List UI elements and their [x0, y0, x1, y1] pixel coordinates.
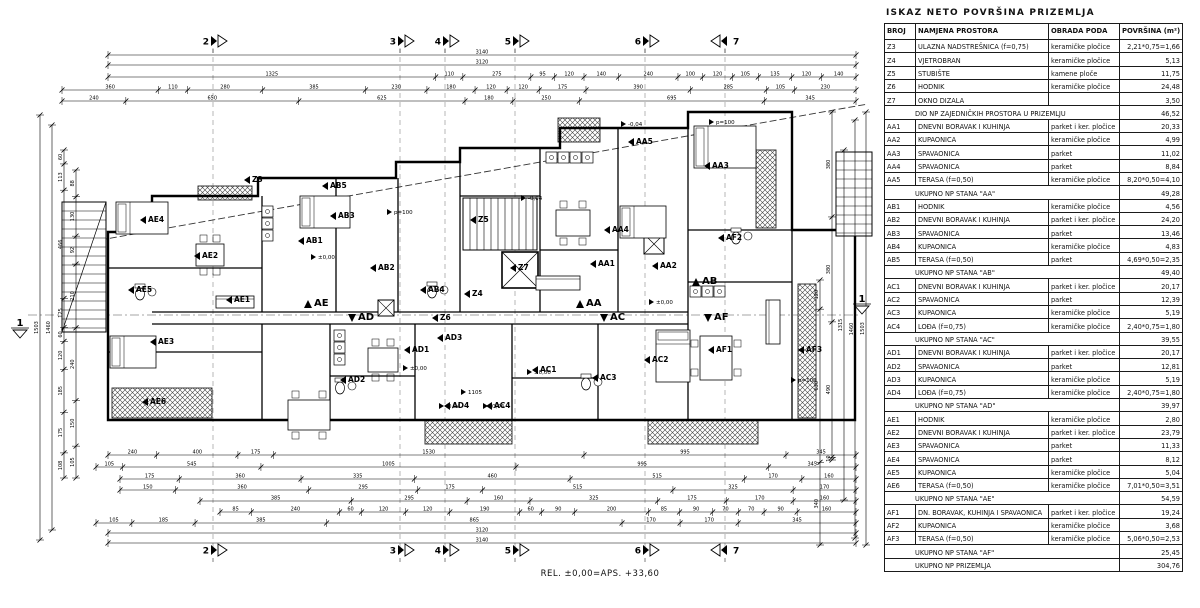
- row-label: UKUPNO NP STANA "AE": [885, 492, 1120, 505]
- svg-text:AB1: AB1: [306, 236, 323, 245]
- svg-text:AA4: AA4: [612, 225, 629, 234]
- svg-text:60: 60: [58, 154, 64, 160]
- table-row: AD4LOĐA (f=0,75)keramičke pločice2,40*0,…: [885, 385, 1183, 398]
- svg-text:360: 360: [237, 485, 247, 491]
- cell-broj: AA5: [885, 172, 916, 185]
- svg-text:AB3: AB3: [338, 211, 355, 220]
- table-row: Z7OKNO DIZALA3,50: [885, 93, 1183, 106]
- cell-obrada: keramičke pločice: [1049, 412, 1120, 425]
- cell-povrsina: 4,56: [1120, 199, 1183, 212]
- table-row: AE5KUPAONICAkeramičke pločice5,04: [885, 465, 1183, 478]
- cell-povrsina: 12,81: [1120, 359, 1183, 372]
- svg-text:2: 2: [203, 547, 209, 557]
- cell-namjena: TERASA (f=0,50): [916, 252, 1049, 265]
- table-row: AA3SPAVAONICAparket11,02: [885, 146, 1183, 159]
- cell-povrsina: 8,12: [1120, 452, 1183, 465]
- row-area-value: 39,55: [1120, 332, 1183, 345]
- cell-obrada: keramičke pločice: [1049, 372, 1120, 385]
- cell-broj: Z3: [885, 40, 916, 53]
- svg-text:185: 185: [58, 386, 64, 396]
- svg-text:1503: 1503: [860, 322, 866, 335]
- cell-obrada: keramičke pločice: [1049, 305, 1120, 318]
- svg-text:460: 460: [487, 474, 497, 480]
- cell-obrada: keramičke pločice: [1049, 518, 1120, 531]
- svg-text:88: 88: [70, 180, 76, 186]
- svg-text:135: 135: [770, 72, 780, 78]
- svg-text:AD1: AD1: [412, 345, 429, 354]
- svg-text:1325: 1325: [265, 72, 278, 78]
- svg-text:385: 385: [271, 496, 281, 502]
- cell-namjena: TERASA (f=0,50): [916, 478, 1049, 491]
- svg-text:85: 85: [232, 507, 238, 513]
- svg-text:190: 190: [480, 507, 490, 513]
- svg-text:AE6: AE6: [150, 397, 166, 406]
- cell-broj: Z7: [885, 93, 916, 106]
- svg-text:1503: 1503: [34, 321, 40, 334]
- svg-text:995: 995: [637, 462, 647, 468]
- cell-obrada: parket: [1049, 452, 1120, 465]
- table-header-row: BROJNAMJENA PROSTORAOBRADA PODAPOVRŠINA …: [885, 24, 1183, 40]
- svg-text:695: 695: [667, 96, 677, 102]
- svg-text:120: 120: [518, 85, 528, 91]
- cell-namjena: SPAVAONICA: [916, 226, 1049, 239]
- cell-obrada: keramičke pločice: [1049, 53, 1120, 66]
- svg-text:170: 170: [646, 518, 656, 524]
- cell-broj: AB3: [885, 226, 916, 239]
- svg-text:-0,04: -0,04: [446, 404, 461, 410]
- cell-povrsina: 5,19: [1120, 372, 1183, 385]
- svg-text:7: 7: [733, 38, 739, 48]
- cell-namjena: KUPAONICA: [916, 465, 1049, 478]
- cell-namjena: KUPAONICA: [916, 372, 1049, 385]
- cell-obrada: parket i ker. pločice: [1049, 279, 1120, 292]
- svg-text:240: 240: [128, 450, 138, 456]
- svg-text:200: 200: [607, 507, 617, 513]
- svg-text:1460: 1460: [849, 323, 855, 336]
- svg-text:120: 120: [58, 351, 64, 361]
- svg-text:175: 175: [687, 496, 697, 502]
- row-label: UKUPNO NP PRIZEMLJA: [885, 558, 1120, 571]
- svg-text:385: 385: [256, 518, 266, 524]
- table-row: AC1DNEVNI BORAVAK I KUHINJAparket i ker.…: [885, 279, 1183, 292]
- svg-text:466: 466: [58, 240, 64, 250]
- cell-povrsina: 2,40*0,75=1,80: [1120, 319, 1183, 332]
- svg-text:125: 125: [58, 308, 64, 318]
- row-label: UKUPNO NP STANA "AC": [885, 332, 1120, 345]
- cell-broj: AE2: [885, 425, 916, 438]
- cell-povrsina: 5,04: [1120, 465, 1183, 478]
- row-label: DIO NP ZAJEDNIČKIH PROSTORA U PRIZEMLJU: [885, 106, 1120, 119]
- svg-text:1105: 1105: [468, 390, 482, 396]
- svg-text:113: 113: [58, 172, 64, 182]
- table-row: AD1DNEVNI BORAVAK I KUHINJAparket i ker.…: [885, 345, 1183, 358]
- svg-text:AE3: AE3: [158, 337, 174, 346]
- svg-text:490: 490: [826, 385, 832, 395]
- table-row: AC4LOĐA (f=0,75)keramičke pločice2,40*0,…: [885, 319, 1183, 332]
- svg-text:345: 345: [816, 450, 826, 456]
- svg-text:100: 100: [686, 72, 696, 78]
- svg-text:240: 240: [644, 72, 654, 78]
- subtotal-row: UKUPNO NP STANA "AC"39,55: [885, 332, 1183, 345]
- cell-povrsina: 20,17: [1120, 345, 1183, 358]
- table-row: AE2DNEVNI BORAVAK I KUHINJAparket i ker.…: [885, 425, 1183, 438]
- cell-namjena: STUBIŠTE: [916, 66, 1049, 79]
- svg-text:120: 120: [814, 290, 820, 300]
- cell-obrada: parket: [1049, 159, 1120, 172]
- cell-namjena: DNEVNI BORAVAK I KUHINJA: [916, 425, 1049, 438]
- cell-namjena: SPAVAONICA: [916, 452, 1049, 465]
- svg-text:185: 185: [159, 518, 169, 524]
- svg-text:650: 650: [208, 96, 218, 102]
- cell-obrada: parket i ker. pločice: [1049, 212, 1120, 225]
- cell-namjena: KUPAONICA: [916, 239, 1049, 252]
- svg-text:60: 60: [527, 507, 533, 513]
- svg-text:105: 105: [109, 518, 119, 524]
- svg-text:AE2: AE2: [202, 251, 218, 260]
- svg-text:140: 140: [597, 72, 607, 78]
- svg-text:120: 120: [802, 72, 812, 78]
- cell-povrsina: 24,48: [1120, 79, 1183, 92]
- svg-text:240: 240: [89, 96, 99, 102]
- cell-povrsina: 20,17: [1120, 279, 1183, 292]
- svg-text:p=100: p=100: [394, 210, 413, 216]
- svg-text:345: 345: [792, 518, 802, 524]
- column-header: NAMJENA PROSTORA: [916, 24, 1049, 40]
- svg-text:85: 85: [661, 507, 667, 513]
- svg-text:AC: AC: [610, 312, 625, 323]
- cell-broj: AC1: [885, 279, 916, 292]
- svg-text:160: 160: [820, 496, 830, 502]
- cell-namjena: LOĐA (f=0,75): [916, 319, 1049, 332]
- svg-text:4: 4: [435, 547, 441, 557]
- svg-text:AA1: AA1: [598, 259, 615, 268]
- cell-broj: AE6: [885, 478, 916, 491]
- svg-text:175: 175: [558, 85, 568, 91]
- table-row: AF1DN. BORAVAK, KUHINJA I SPAVAONICApark…: [885, 505, 1183, 518]
- table-row: AB2DNEVNI BORAVAK I KUHINJAparket i ker.…: [885, 212, 1183, 225]
- svg-text:5: 5: [505, 38, 511, 48]
- svg-text:625: 625: [377, 96, 387, 102]
- cell-obrada: keramičke pločice: [1049, 199, 1120, 212]
- svg-text:AD: AD: [358, 312, 374, 323]
- svg-text:90: 90: [693, 507, 699, 513]
- cell-broj: AE5: [885, 465, 916, 478]
- subtotal-row: UKUPNO NP STANA "AE"54,59: [885, 492, 1183, 505]
- cell-povrsina: 4,99: [1120, 133, 1183, 146]
- cell-obrada: parket i ker. pločice: [1049, 119, 1120, 132]
- svg-text:7: 7: [733, 547, 739, 557]
- cell-obrada: keramičke pločice: [1049, 478, 1120, 491]
- svg-text:105: 105: [776, 85, 786, 91]
- cell-namjena: SPAVAONICA: [916, 292, 1049, 305]
- cell-namjena: SPAVAONICA: [916, 359, 1049, 372]
- svg-text:60: 60: [347, 507, 353, 513]
- cell-broj: AA1: [885, 119, 916, 132]
- svg-text:p=100: p=100: [716, 120, 735, 126]
- svg-text:2: 2: [203, 38, 209, 48]
- row-area-value: 49,40: [1120, 266, 1183, 279]
- drawing-sheet: AE4AE2AE5AE3AE1AE6AB3AB1AB2AB4AB5Z3Z4Z5Z…: [0, 0, 1200, 608]
- svg-text:Z5: Z5: [478, 215, 489, 224]
- cell-obrada: parket: [1049, 438, 1120, 451]
- svg-text:AC2: AC2: [652, 355, 669, 364]
- cell-broj: AE3: [885, 438, 916, 451]
- table-row: AD2SPAVAONICAparket12,81: [885, 359, 1183, 372]
- svg-text:180: 180: [446, 85, 456, 91]
- cell-namjena: DNEVNI BORAVAK I KUHINJA: [916, 212, 1049, 225]
- cell-namjena: KUPAONICA: [916, 305, 1049, 318]
- svg-text:-0,04: -0,04: [490, 404, 505, 410]
- svg-text:-0,04: -0,04: [528, 196, 543, 202]
- svg-text:AA: AA: [586, 298, 602, 309]
- svg-text:275: 275: [492, 72, 502, 78]
- subtotal-row: UKUPNO NP STANA "AB"49,40: [885, 266, 1183, 279]
- table-row: AE1HODNIKkeramičke pločice2,80: [885, 412, 1183, 425]
- svg-text:345: 345: [805, 96, 815, 102]
- svg-text:70: 70: [748, 507, 754, 513]
- cell-namjena: DNEVNI BORAVAK I KUHINJA: [916, 279, 1049, 292]
- cell-povrsina: 5,19: [1120, 305, 1183, 318]
- cell-namjena: ULAZNA NADSTREŠNICA (f=0,75): [916, 40, 1049, 53]
- svg-text:AF2: AF2: [726, 233, 742, 242]
- svg-text:AB4: AB4: [428, 285, 445, 294]
- svg-text:AB: AB: [702, 276, 717, 287]
- cell-obrada: keramičke pločice: [1049, 79, 1120, 92]
- row-area-value: 39,97: [1120, 399, 1183, 412]
- table-row: AA5TERASA (f=0,50)keramičke pločice8,20*…: [885, 172, 1183, 185]
- svg-text:AA2: AA2: [660, 261, 677, 270]
- cell-povrsina: 23,79: [1120, 425, 1183, 438]
- subtotal-row: UKUPNO NP STANA "AF"25,45: [885, 545, 1183, 558]
- cell-povrsina: 2,80: [1120, 412, 1183, 425]
- cell-broj: AB2: [885, 212, 916, 225]
- svg-text:AD2: AD2: [348, 375, 365, 384]
- table-row: Z4VJETROBRANkeramičke pločice5,13: [885, 53, 1183, 66]
- column-header: POVRŠINA (m²): [1120, 24, 1183, 40]
- cell-namjena: VJETROBRAN: [916, 53, 1049, 66]
- cell-namjena: DN. BORAVAK, KUHINJA I SPAVAONICA: [916, 505, 1049, 518]
- cell-broj: AC4: [885, 319, 916, 332]
- svg-text:120: 120: [564, 72, 574, 78]
- svg-text:160: 160: [822, 507, 832, 513]
- cell-obrada: parket: [1049, 359, 1120, 372]
- cell-povrsina: 8,20*0,50=4,10: [1120, 172, 1183, 185]
- svg-text:±0,00: ±0,00: [318, 255, 335, 261]
- table-row: AE3SPAVAONICAparket11,33: [885, 438, 1183, 451]
- svg-text:180: 180: [484, 96, 494, 102]
- svg-text:108: 108: [58, 461, 64, 471]
- cell-povrsina: 4,83: [1120, 239, 1183, 252]
- table-row: AA1DNEVNI BORAVAK I KUHINJAparket i ker.…: [885, 119, 1183, 132]
- cell-obrada: keramičke pločice: [1049, 133, 1120, 146]
- svg-text:AA5: AA5: [636, 137, 653, 146]
- svg-text:AF: AF: [714, 312, 729, 323]
- svg-text:170: 170: [755, 496, 765, 502]
- svg-text:515: 515: [652, 474, 662, 480]
- svg-text:AB2: AB2: [378, 263, 395, 272]
- svg-text:6: 6: [635, 38, 641, 48]
- cell-namjena: KUPAONICA: [916, 133, 1049, 146]
- svg-text:3: 3: [390, 547, 396, 557]
- svg-text:345: 345: [807, 462, 817, 468]
- cell-povrsina: 3,50: [1120, 93, 1183, 106]
- cell-namjena: DNEVNI BORAVAK I KUHINJA: [916, 345, 1049, 358]
- subtotal-row: UKUPNO NP STANA "AA"49,28: [885, 186, 1183, 199]
- cell-broj: AF1: [885, 505, 916, 518]
- svg-text:1: 1: [17, 318, 24, 329]
- cell-obrada: parket i ker. pločice: [1049, 345, 1120, 358]
- cell-obrada: keramičke pločice: [1049, 40, 1120, 53]
- svg-text:280: 280: [220, 85, 230, 91]
- cell-obrada: keramičke pločice: [1049, 465, 1120, 478]
- svg-text:6: 6: [635, 547, 641, 557]
- svg-text:150: 150: [70, 419, 76, 429]
- cell-obrada: parket: [1049, 252, 1120, 265]
- svg-text:250: 250: [541, 96, 551, 102]
- svg-text:105: 105: [105, 462, 115, 468]
- svg-text:AE: AE: [314, 298, 329, 309]
- svg-text:360: 360: [235, 474, 245, 480]
- cell-povrsina: 20,33: [1120, 119, 1183, 132]
- svg-text:360: 360: [105, 85, 115, 91]
- cell-broj: AC2: [885, 292, 916, 305]
- cell-obrada: [1049, 93, 1120, 106]
- svg-text:140: 140: [834, 72, 844, 78]
- row-label: UKUPNO NP STANA "AA": [885, 186, 1120, 199]
- cell-namjena: HODNIK: [916, 412, 1049, 425]
- cell-namjena: SPAVAONICA: [916, 438, 1049, 451]
- svg-text:1: 1: [859, 294, 866, 305]
- cell-obrada: parket i ker. pločice: [1049, 425, 1120, 438]
- table-row: AC3KUPAONICAkeramičke pločice5,19: [885, 305, 1183, 318]
- cell-namjena: TERASA (f=0,50): [916, 531, 1049, 544]
- cell-povrsina: 2,40*0,75=1,80: [1120, 385, 1183, 398]
- svg-text:AE5: AE5: [136, 285, 152, 294]
- svg-text:285: 285: [724, 85, 734, 91]
- cell-obrada: parket: [1049, 146, 1120, 159]
- cell-obrada: parket: [1049, 226, 1120, 239]
- svg-text:±0,00: ±0,00: [410, 366, 427, 372]
- cell-povrsina: 11,75: [1120, 66, 1183, 79]
- svg-text:400: 400: [193, 450, 203, 456]
- cell-namjena: HODNIK: [916, 79, 1049, 92]
- svg-text:175: 175: [58, 428, 64, 438]
- svg-text:AD3: AD3: [445, 333, 462, 342]
- cell-broj: AE1: [885, 412, 916, 425]
- subtotal-row: DIO NP ZAJEDNIČKIH PROSTORA U PRIZEMLJU4…: [885, 106, 1183, 119]
- cell-povrsina: 8,84: [1120, 159, 1183, 172]
- cell-povrsina: 19,24: [1120, 505, 1183, 518]
- svg-text:170: 170: [820, 485, 830, 491]
- cell-namjena: OKNO DIZALA: [916, 93, 1049, 106]
- svg-text:120: 120: [486, 85, 496, 91]
- table-row: AE6TERASA (f=0,50)keramičke pločice7,01*…: [885, 478, 1183, 491]
- cell-broj: AE4: [885, 452, 916, 465]
- svg-text:160: 160: [494, 496, 504, 502]
- row-area-value: 25,45: [1120, 545, 1183, 558]
- svg-text:545: 545: [187, 462, 197, 468]
- cell-povrsina: 7,01*0,50=3,51: [1120, 478, 1183, 491]
- svg-text:1005: 1005: [382, 462, 395, 468]
- svg-text:515: 515: [573, 485, 583, 491]
- table-row: AF2KUPAONICAkeramičke pločice3,68: [885, 518, 1183, 531]
- cell-obrada: keramičke pločice: [1049, 531, 1120, 544]
- cell-obrada: kamene ploče: [1049, 66, 1120, 79]
- svg-text:1460: 1460: [46, 321, 52, 334]
- svg-text:92: 92: [70, 247, 76, 253]
- table-row: AF3TERASA (f=0,50)keramičke pločice5,06*…: [885, 531, 1183, 544]
- svg-text:120: 120: [423, 507, 433, 513]
- table-row: AA2KUPAONICAkeramičke pločice4,99: [885, 133, 1183, 146]
- svg-text:295: 295: [358, 485, 368, 491]
- svg-text:-0,04: -0,04: [628, 122, 643, 128]
- svg-text:630: 630: [814, 381, 820, 391]
- total-row: UKUPNO NP PRIZEMLJA304,76: [885, 558, 1183, 571]
- cell-broj: AB5: [885, 252, 916, 265]
- svg-text:±0,00: ±0,00: [534, 370, 551, 376]
- cell-broj: Z5: [885, 66, 916, 79]
- svg-text:110: 110: [444, 72, 454, 78]
- row-area-value: 49,28: [1120, 186, 1183, 199]
- svg-text:325: 325: [728, 485, 738, 491]
- svg-text:995: 995: [680, 450, 690, 456]
- table-row: AB3SPAVAONICAparket13,46: [885, 226, 1183, 239]
- cell-namjena: KUPAONICA: [916, 518, 1049, 531]
- subtotal-row: UKUPNO NP STANA "AD"39,97: [885, 399, 1183, 412]
- table-row: AB1HODNIKkeramičke pločice4,56: [885, 199, 1183, 212]
- cell-broj: AB4: [885, 239, 916, 252]
- row-area-value: 54,59: [1120, 492, 1183, 505]
- cell-povrsina: 3,68: [1120, 518, 1183, 531]
- cell-povrsina: 11,33: [1120, 438, 1183, 451]
- svg-text:170: 170: [704, 518, 714, 524]
- svg-text:340: 340: [814, 499, 820, 509]
- cell-broj: AD1: [885, 345, 916, 358]
- svg-text:AE4: AE4: [148, 215, 164, 224]
- cell-povrsina: 2,21*0,75=1,66: [1120, 40, 1183, 53]
- column-header: BROJ: [885, 24, 916, 40]
- svg-text:240: 240: [291, 507, 301, 513]
- cell-broj: AC3: [885, 305, 916, 318]
- cell-povrsina: 12,39: [1120, 292, 1183, 305]
- svg-text:240: 240: [70, 359, 76, 369]
- row-label: UKUPNO NP STANA "AD": [885, 399, 1120, 412]
- svg-text:Z6: Z6: [440, 313, 451, 322]
- svg-text:70: 70: [722, 507, 728, 513]
- row-area-value: 46,52: [1120, 106, 1183, 119]
- svg-text:170: 170: [768, 474, 778, 480]
- cell-broj: AD4: [885, 385, 916, 398]
- cell-namjena: HODNIK: [916, 199, 1049, 212]
- svg-text:175: 175: [251, 450, 261, 456]
- svg-text:110: 110: [168, 85, 178, 91]
- svg-text:AE1: AE1: [234, 295, 250, 304]
- cell-broj: AD2: [885, 359, 916, 372]
- table-row: AB4KUPAONICAkeramičke pločice4,83: [885, 239, 1183, 252]
- cell-obrada: parket: [1049, 292, 1120, 305]
- svg-text:295: 295: [404, 496, 414, 502]
- row-area-value: 304,76: [1120, 558, 1183, 571]
- svg-text:210: 210: [70, 291, 76, 301]
- area-table-panel: ISKAZ NETO POVRŠINA PRIZEMLJA BROJNAMJEN…: [884, 8, 1172, 572]
- cell-povrsina: 11,02: [1120, 146, 1183, 159]
- svg-text:120: 120: [713, 72, 723, 78]
- cell-povrsina: 5,13: [1120, 53, 1183, 66]
- svg-text:AB5: AB5: [330, 181, 347, 190]
- table-row: AD3KUPAONICAkeramičke pločice5,19: [885, 372, 1183, 385]
- svg-text:390: 390: [633, 85, 643, 91]
- cell-broj: AA2: [885, 133, 916, 146]
